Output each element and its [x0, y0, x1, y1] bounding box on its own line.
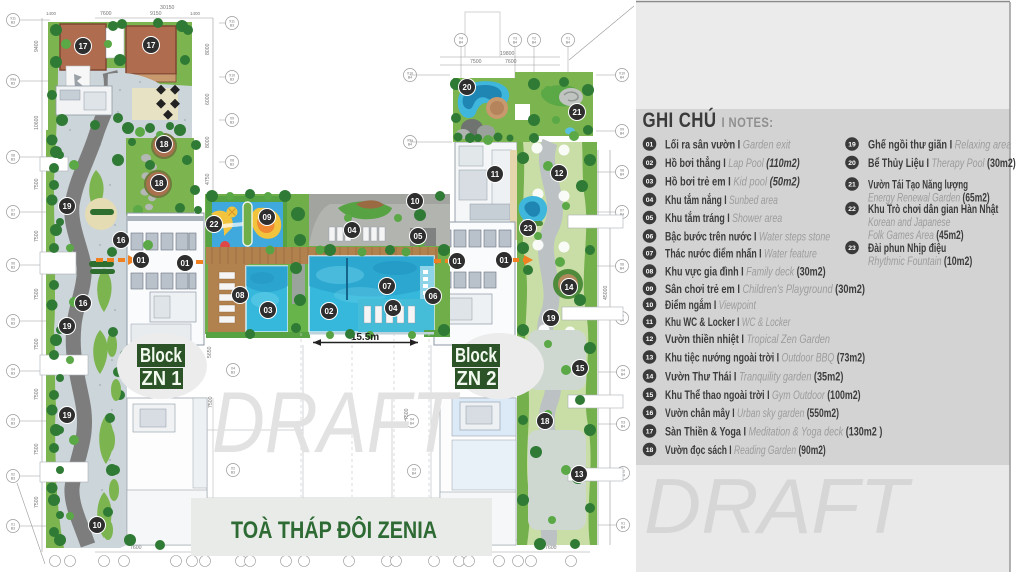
svg-text:06: 06 [429, 292, 438, 301]
svg-text:B3: B3 [11, 212, 15, 216]
svg-text:05: 05 [414, 232, 423, 241]
svg-text:16: 16 [79, 299, 88, 308]
svg-text:B3: B3 [11, 157, 15, 161]
svg-text:19: 19 [63, 322, 72, 331]
svg-text:B4: B4 [620, 266, 624, 270]
svg-text:01: 01 [453, 257, 462, 266]
svg-text:7500: 7500 [34, 388, 40, 400]
svg-text:Lối ra sân vườn I Garden exit: Lối ra sân vườn I Garden exit [665, 138, 791, 152]
svg-text:B4: B4 [621, 424, 625, 428]
svg-text:03: 03 [264, 306, 273, 315]
svg-text:05: 05 [646, 215, 654, 222]
svg-text:19: 19 [63, 202, 72, 211]
svg-text:7500: 7500 [470, 59, 482, 65]
svg-text:Bậc bước trên nước I Water ste: Bậc bước trên nước I Water steps stone [665, 230, 830, 244]
svg-text:Sàn Thiền & Yoga I Meditation: Sàn Thiền & Yoga I Meditation & Yoga dec… [665, 425, 883, 439]
svg-text:09: 09 [646, 286, 654, 293]
svg-text:12: 12 [646, 336, 654, 343]
svg-text:6000: 6000 [205, 93, 211, 105]
svg-text:09: 09 [263, 213, 272, 222]
svg-text:ZN 1: ZN 1 [142, 368, 182, 390]
svg-text:B4: B4 [513, 40, 517, 44]
svg-text:18: 18 [541, 417, 550, 426]
svg-text:B3: B3 [11, 321, 15, 325]
svg-text:7500: 7500 [34, 496, 40, 508]
svg-text:Khu Trò chơi dân gian Hàn Nhật: Khu Trò chơi dân gian Hàn Nhật [868, 202, 999, 216]
svg-text:B4: B4 [408, 142, 412, 146]
svg-text:9150: 9150 [150, 11, 162, 17]
svg-text:Vườn đọc sách I Reading Garden: Vườn đọc sách I Reading Garden (90m2) [665, 443, 826, 457]
svg-text:20: 20 [848, 160, 856, 167]
svg-text:B4: B4 [566, 40, 570, 44]
svg-text:B4: B4 [412, 471, 416, 475]
svg-text:Khu tắm nắng I Sunbed area: Khu tắm nắng I Sunbed area [665, 192, 778, 207]
svg-text:B3: B3 [11, 265, 15, 269]
svg-text:01: 01 [181, 259, 190, 268]
svg-text:B3: B3 [231, 370, 235, 374]
svg-text:7500: 7500 [34, 288, 40, 300]
svg-text:Block: Block [455, 345, 498, 367]
svg-text:Đài phun Nhịp điệu: Đài phun Nhịp điệu [868, 241, 946, 255]
svg-text:21: 21 [848, 182, 856, 189]
svg-text:Thác nước điểm nhấn I Water fe: Thác nước điểm nhấn I Water feature [665, 247, 817, 261]
svg-text:7600: 7600 [505, 59, 517, 65]
svg-text:7500: 7500 [34, 230, 40, 242]
svg-text:07: 07 [383, 282, 392, 291]
svg-text:Khu tiệc nướng ngoài trời I Ou: Khu tiệc nướng ngoài trời I Outdoor BBQ … [665, 351, 865, 365]
svg-text:07: 07 [646, 251, 654, 258]
svg-text:17: 17 [646, 429, 654, 436]
svg-text:02: 02 [646, 160, 654, 167]
svg-text:21: 21 [573, 108, 582, 117]
svg-text:8000: 8000 [205, 43, 211, 55]
svg-text:Korean and Japanese: Korean and Japanese [868, 216, 951, 230]
svg-text:01: 01 [646, 142, 654, 149]
svg-text:B3: B3 [11, 81, 15, 85]
svg-text:B4: B4 [408, 75, 412, 79]
svg-text:45000: 45000 [603, 285, 609, 300]
svg-text:13: 13 [575, 470, 584, 479]
svg-text:B3: B3 [11, 526, 15, 530]
svg-text:01: 01 [500, 256, 509, 265]
svg-text:B3: B3 [11, 476, 15, 480]
svg-text:16: 16 [646, 410, 654, 417]
svg-text:8000: 8000 [205, 136, 211, 148]
svg-text:B3: B3 [230, 120, 234, 124]
svg-text:15.5m: 15.5m [351, 332, 379, 343]
svg-text:Hồ bơi trẻ em I Kid pool (50m2: Hồ bơi trẻ em I Kid pool (50m2) [665, 175, 800, 189]
svg-text:23: 23 [848, 245, 856, 252]
svg-text:30150: 30150 [160, 5, 175, 11]
svg-text:Ghế ngồi thư giãn I Relaxing a: Ghế ngồi thư giãn I Relaxing area [868, 138, 1011, 152]
svg-text:TOÀ THÁP ĐÔI ZENIA: TOÀ THÁP ĐÔI ZENIA [231, 516, 437, 544]
svg-text:4750: 4750 [205, 173, 211, 185]
svg-text:08: 08 [646, 269, 654, 276]
svg-text:13: 13 [646, 355, 654, 362]
svg-text:ZN 2: ZN 2 [457, 368, 497, 390]
svg-text:B4: B4 [621, 372, 625, 376]
svg-text:B4: B4 [620, 75, 624, 79]
svg-text:1400: 1400 [190, 11, 201, 16]
svg-text:7500: 7500 [34, 178, 40, 190]
svg-text:Bể Thủy Liệu I Therapy Pool (3: Bể Thủy Liệu I Therapy Pool (30m2) [868, 157, 1016, 171]
svg-text:10: 10 [646, 302, 654, 309]
svg-text:14: 14 [565, 283, 574, 292]
svg-text:17: 17 [147, 41, 156, 50]
svg-text:01: 01 [137, 256, 146, 265]
svg-text:15: 15 [576, 364, 585, 373]
svg-text:Khu WC & Locker I WC & Locker: Khu WC & Locker I WC & Locker [665, 316, 791, 329]
svg-text:B3: B3 [11, 371, 15, 375]
svg-text:19800: 19800 [500, 51, 515, 57]
svg-text:Block: Block [140, 345, 183, 367]
svg-text:03: 03 [646, 179, 654, 186]
svg-text:B4: B4 [532, 40, 536, 44]
svg-text:18: 18 [646, 447, 654, 454]
svg-text:Khu Thể thao ngoài trời I Gym: Khu Thể thao ngoài trời I Gym Outdoor (1… [665, 388, 861, 402]
svg-text:08: 08 [236, 291, 245, 300]
svg-text:B3: B3 [231, 470, 235, 474]
svg-text:B3: B3 [11, 20, 15, 24]
svg-text:Vườn chân mây I Urban sky gard: Vườn chân mây I Urban sky garden (550m2) [665, 406, 839, 420]
svg-text:19: 19 [63, 411, 72, 420]
svg-text:14: 14 [646, 374, 654, 381]
svg-text:B3: B3 [230, 77, 234, 81]
svg-text:19: 19 [547, 314, 556, 323]
svg-text:Khu tắm tráng I Shower area: Khu tắm tráng I Shower area [665, 210, 782, 225]
svg-text:11: 11 [491, 170, 500, 179]
svg-text:10600: 10600 [34, 115, 40, 130]
svg-text:18: 18 [160, 140, 169, 149]
svg-text:B3: B3 [11, 421, 15, 425]
svg-text:04: 04 [389, 304, 398, 313]
svg-text:18: 18 [155, 179, 164, 188]
svg-text:12: 12 [555, 169, 564, 178]
svg-text:B4: B4 [620, 131, 624, 135]
svg-text:7600: 7600 [130, 545, 142, 551]
svg-text:23: 23 [524, 224, 533, 233]
svg-text:22: 22 [210, 220, 219, 229]
svg-text:DRAFT: DRAFT [644, 462, 913, 550]
svg-text:5650: 5650 [207, 346, 213, 358]
svg-text:Khu vực gia đình I Family deck: Khu vực gia đình I Family deck (30m2) [665, 265, 826, 279]
svg-text:Vườn Tái Tạo Năng lượng: Vườn Tái Tạo Năng lượng [868, 179, 968, 192]
svg-text:DRAFT: DRAFT [212, 375, 461, 471]
svg-text:Rhythmic Fountain (10m2): Rhythmic Fountain (10m2) [868, 255, 973, 269]
svg-text:15: 15 [646, 392, 654, 399]
svg-text:11: 11 [646, 319, 653, 326]
svg-text:B3: B3 [230, 162, 234, 166]
svg-text:22: 22 [848, 206, 856, 213]
svg-text:B4: B4 [621, 525, 625, 529]
svg-text:B3: B3 [230, 23, 234, 27]
svg-text:20: 20 [463, 83, 472, 92]
svg-text:10: 10 [411, 197, 420, 206]
svg-text:Vườn Thư Thái I Tranquility ga: Vườn Thư Thái I Tranquility garden (35m2… [665, 370, 844, 384]
svg-text:1400: 1400 [46, 11, 57, 16]
svg-text:16: 16 [117, 236, 126, 245]
svg-text:Điểm ngắm I Viewpoint: Điểm ngắm I Viewpoint [665, 297, 757, 312]
svg-text:04: 04 [646, 197, 654, 204]
svg-text:Vườn thiền nhiệt I Tropical Ze: Vườn thiền nhiệt I Tropical Zen Garden [665, 333, 830, 347]
svg-text:7500: 7500 [34, 443, 40, 455]
svg-text:06: 06 [646, 234, 654, 241]
svg-text:04: 04 [348, 226, 357, 235]
svg-text:B4: B4 [620, 172, 624, 176]
svg-text:Hồ bơi thẳng I Lap Pool (110m2: Hồ bơi thẳng I Lap Pool (110m2) [665, 155, 800, 170]
svg-text:7500: 7500 [34, 338, 40, 350]
svg-text:19: 19 [848, 142, 856, 149]
svg-text:02: 02 [325, 307, 334, 316]
svg-text:Sân chơi trẻ em I Children's P: Sân chơi trẻ em I Children's Playground … [665, 283, 865, 297]
svg-text:B4: B4 [459, 40, 463, 44]
svg-text:17: 17 [79, 42, 88, 51]
svg-text:9400: 9400 [34, 40, 40, 52]
svg-text:7600: 7600 [100, 11, 112, 17]
svg-text:10: 10 [93, 521, 102, 530]
